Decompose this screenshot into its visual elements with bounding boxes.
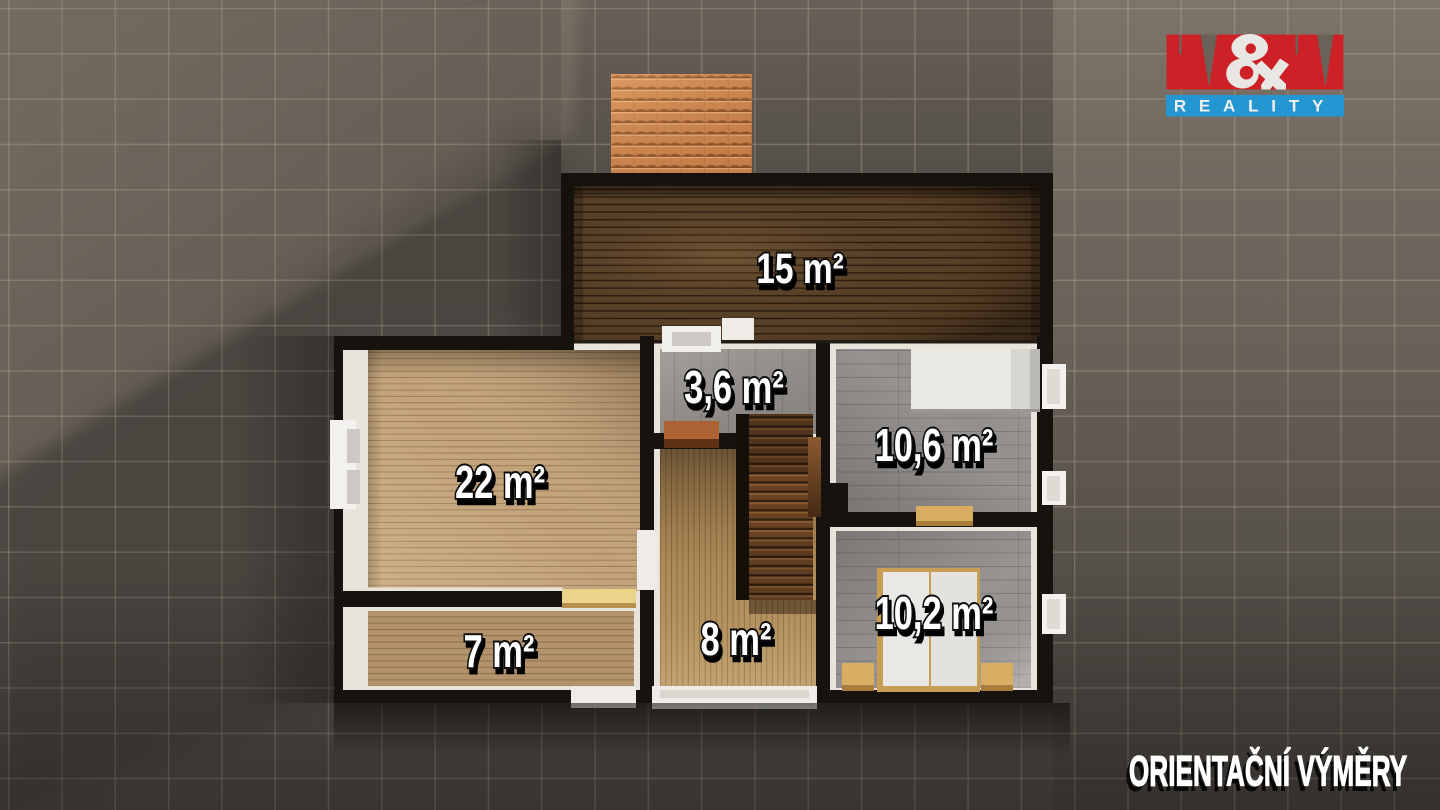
svg-text:8 m²: 8 m² xyxy=(701,613,772,665)
svg-text:ORIENTAČNÍ VÝMĚRY: ORIENTAČNÍ VÝMĚRY xyxy=(1129,747,1407,795)
svg-text:10,2 m²: 10,2 m² xyxy=(875,587,994,639)
svg-text:3,6 m²: 3,6 m² xyxy=(684,361,784,413)
svg-text:15 m²: 15 m² xyxy=(756,245,844,293)
svg-text:10,6 m²: 10,6 m² xyxy=(875,419,994,471)
svg-text:REALITY: REALITY xyxy=(1174,97,1336,116)
svg-text:7 m²: 7 m² xyxy=(464,625,535,677)
svg-text:22 m²: 22 m² xyxy=(455,456,545,508)
